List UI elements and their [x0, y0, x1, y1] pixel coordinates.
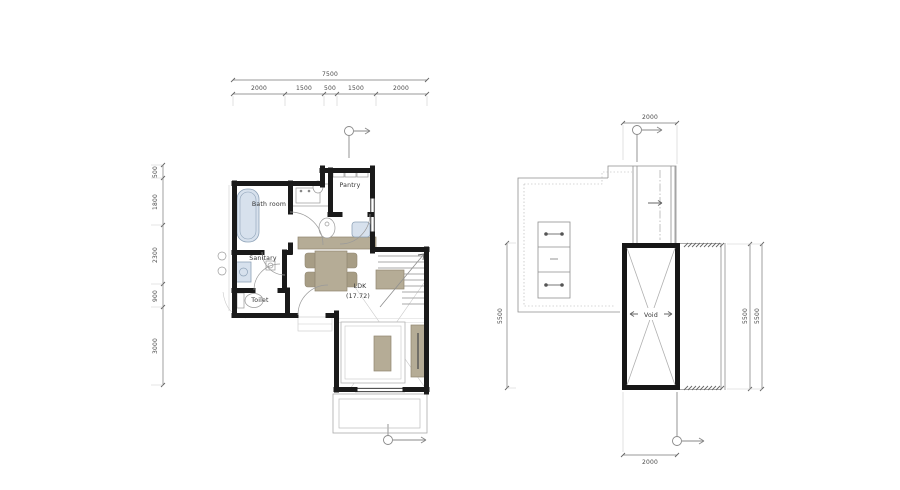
dim2-right-inner: 5500 [742, 308, 749, 324]
dim-left-seg-1: 500 [152, 166, 159, 178]
second-floor-top-dimension: 2000 [621, 114, 679, 164]
dim-left-seg-4: 900 [152, 290, 159, 302]
dim-left-seg-5: 3000 [152, 338, 159, 354]
ldk-area-label: (17.72) [346, 293, 370, 300]
dim-top-seg-3: 500 [324, 85, 336, 92]
faucet-dot [308, 190, 311, 193]
dim2-left: 5500 [497, 308, 504, 324]
void-shaft: Void [625, 246, 678, 388]
skylight-panels [538, 222, 570, 298]
void-label: Void [644, 312, 658, 319]
washing-machine [236, 262, 251, 282]
bench-fixture [352, 222, 370, 237]
second-floor-left-dimension: 5500 [497, 241, 516, 390]
dim-top-seg-1: 2000 [251, 85, 267, 92]
dim-left-seg-3: 2300 [152, 247, 159, 263]
stair-cabinet [376, 270, 404, 289]
toilet-tank [237, 293, 244, 308]
stairs [376, 254, 425, 307]
faucet-dot [300, 190, 303, 193]
second-floor-right-dimensions: 5500 5500 [727, 242, 764, 391]
window-south [355, 388, 405, 391]
dim2-right-outer: 5500 [754, 308, 761, 324]
east-eave [680, 243, 725, 390]
first-floor-top-dimensions: 7500 2000 1500 500 1500 2000 [231, 71, 429, 106]
dining-table [315, 251, 347, 291]
first-floor-left-dimensions: 500 1800 2300 900 3000 [151, 163, 165, 387]
first-floor-plan: 7500 2000 1500 500 1500 2000 500 1800 23… [151, 71, 429, 445]
dim-total-width: 7500 [322, 71, 338, 78]
kitchen-peninsula [298, 237, 376, 249]
toilet-label: Toilet [250, 297, 269, 304]
dim-top-seg-5: 2000 [393, 85, 409, 92]
ldk-label: LDK [354, 283, 368, 290]
second-floor-plan: 2000 [497, 114, 764, 466]
bath-room-label: Bath room [252, 201, 286, 208]
living-furniture [341, 322, 426, 383]
corridor-walls [633, 166, 675, 243]
bathroom-fixtures [237, 189, 259, 242]
dim-top-seg-2: 1500 [296, 85, 312, 92]
deck-terrace [333, 394, 427, 433]
second-floor-bottom-dimension: 2000 [621, 392, 704, 466]
dim-left-seg-2: 1800 [152, 194, 159, 210]
architectural-drawing-svg: 7500 2000 1500 500 1500 2000 500 1800 23… [0, 0, 900, 490]
dim2-bottom: 2000 [642, 459, 658, 466]
floor-plan-drawing: 7500 2000 1500 500 1500 2000 500 1800 23… [0, 0, 900, 490]
axis-marker-bottom [384, 424, 427, 445]
axis-marker-top [345, 127, 371, 159]
sofa-cushion [374, 336, 391, 371]
dim2-top: 2000 [642, 114, 658, 121]
pantry-label: Pantry [340, 182, 361, 189]
dining-set [305, 251, 357, 291]
dim-top-seg-4: 1500 [348, 85, 364, 92]
sanitary-label: Sanitary [249, 255, 277, 262]
sofa [341, 322, 405, 383]
